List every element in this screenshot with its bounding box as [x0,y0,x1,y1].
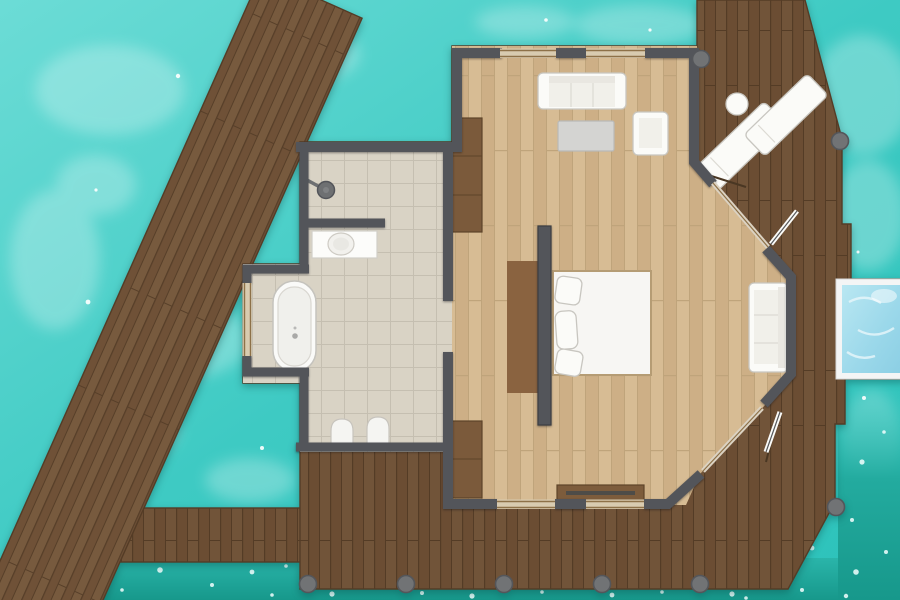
piling [693,51,710,68]
pillow [554,348,584,377]
sink-vanity [312,231,377,258]
piling [832,133,849,150]
piling [594,576,611,593]
piling [828,499,845,516]
tv-partition-wall [538,226,551,425]
piling [692,576,709,593]
floor-plan-canvas [0,0,900,600]
armchair [633,112,668,155]
deep-water-right [838,380,900,600]
bathtub [273,281,316,372]
sofa-top [538,73,626,109]
walkway-bridge [112,508,307,562]
window [497,500,555,510]
window-bathtub-nook [243,283,252,356]
window [586,500,644,510]
pillow [554,275,583,305]
plunge-pool [836,279,900,379]
window [500,49,556,59]
piling [496,576,513,593]
overwater-villa-floor-plan [0,0,900,600]
bedside-rug [507,261,542,393]
wardrobe-cabinet-lower [452,421,482,498]
tub-faucet [292,333,298,339]
piling [398,576,415,593]
pillow [555,310,579,349]
sofa-poolside [749,283,788,372]
window [586,49,645,59]
piling [300,576,317,593]
deck-side-table [726,93,748,115]
coffee-table [558,121,614,151]
double-bed [553,271,651,377]
